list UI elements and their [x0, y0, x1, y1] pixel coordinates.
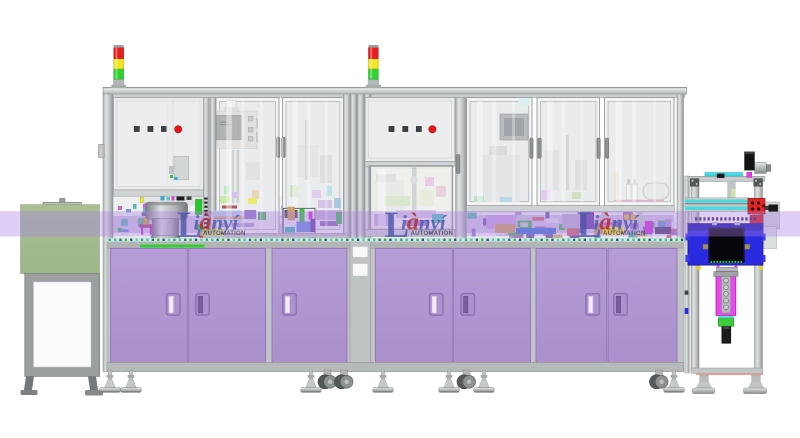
svg-text:AUTOMATION: AUTOMATION — [411, 230, 454, 237]
svg-text:AUTOMATION: AUTOMATION — [203, 230, 246, 237]
svg-text:AUTOMATION: AUTOMATION — [603, 230, 646, 237]
